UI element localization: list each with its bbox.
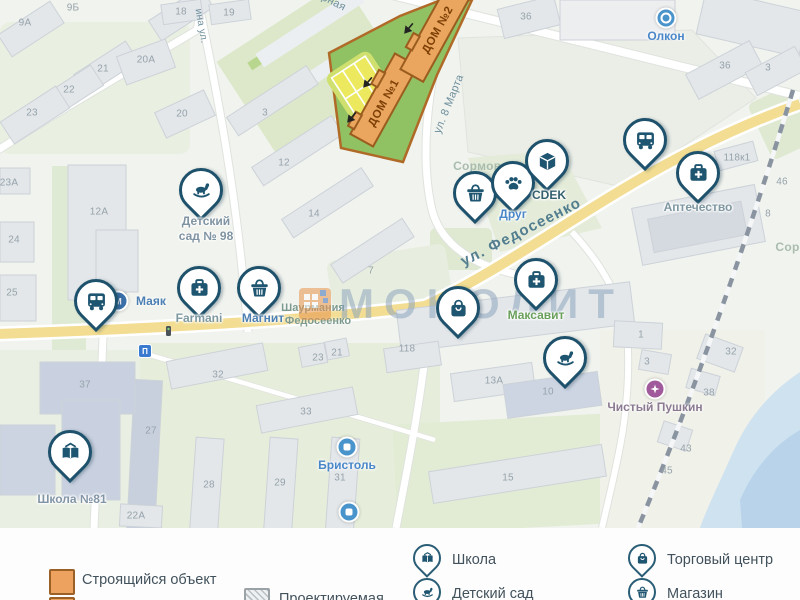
poi-label: CDEK [532, 188, 566, 203]
building-number: 37 [79, 380, 91, 391]
building-number: 8 [765, 209, 771, 220]
rocking-horse-icon [415, 580, 439, 600]
sq-icon [346, 509, 353, 516]
poi-dot-label: Чистый Пушкин [607, 400, 702, 414]
building-number: 118 [399, 344, 416, 355]
poi-dot[interactable] [339, 502, 360, 523]
building-number: 43 [680, 444, 692, 455]
bag-icon [630, 546, 654, 570]
medkit-icon [517, 261, 555, 299]
building-number: 36 [719, 61, 731, 72]
building-number: 20 [176, 109, 188, 120]
building-number: 10 [542, 387, 554, 398]
map-screenshot: ДОМ №1 ДОМ №2 9Б9А21222320А18192023А12А2… [0, 0, 800, 600]
poi-label: Магнит [242, 311, 284, 326]
building-number: 21 [97, 64, 109, 75]
bag-icon [439, 289, 477, 327]
box-icon [528, 142, 566, 180]
building-number: 9Б [67, 3, 80, 14]
bus-icon [626, 121, 664, 159]
building-number: 21 [331, 348, 343, 359]
ring-icon [661, 13, 672, 24]
building-number: 14 [308, 209, 320, 220]
legend-label-rocking-horse: Детский сад [452, 586, 533, 600]
book-icon [51, 433, 89, 471]
rocking-horse-icon [546, 339, 584, 377]
building-number: 24 [8, 235, 20, 246]
building-number: 12А [90, 207, 108, 218]
basket-icon [240, 269, 278, 307]
poi-label: Максавит [508, 308, 565, 323]
poi-dot[interactable] [337, 437, 358, 458]
medkit-icon [679, 154, 717, 192]
building-number: 45 [661, 466, 673, 477]
building-number: 28 [203, 480, 215, 491]
building-number: 23А [0, 178, 18, 189]
building-number: 118к1 [724, 153, 751, 164]
building-number: 38 [703, 388, 715, 399]
book-icon [415, 546, 439, 570]
legend-label-book: Школа [452, 552, 496, 568]
poi-dot-label: Бристоль [318, 458, 376, 472]
building-number: 22А [127, 511, 145, 522]
building-number: 27 [145, 426, 157, 437]
rocking-horse-icon [182, 171, 220, 209]
building-number: 1 [638, 330, 644, 341]
building-number: 25 [6, 288, 18, 299]
building-number: 3 [644, 357, 650, 368]
building-number: 18 [175, 7, 187, 18]
building-number: 3 [262, 108, 268, 119]
building-number: 3 [765, 63, 771, 74]
legend-label-bag: Торговый центр [667, 552, 773, 568]
flower-icon [651, 385, 660, 394]
poi-small-label: Шаурмания [281, 302, 345, 314]
poi-label: Школа №81 [37, 492, 106, 507]
medkit-icon [180, 269, 218, 307]
map-canvas: ДОМ №1 ДОМ №2 9Б9А21222320А18192023А12А2… [0, 0, 800, 528]
building-number: 22 [63, 85, 75, 96]
poi-label: Детский сад № 98 [179, 214, 234, 244]
poi-label: Аптечество [664, 200, 733, 215]
legend-swatch-projected [244, 588, 270, 600]
poi-label: Друг [499, 207, 526, 222]
building-number: 32 [725, 347, 737, 358]
basket-icon [456, 174, 494, 212]
building-number: 13А [485, 376, 503, 387]
building-number: 29 [274, 478, 286, 489]
sq-icon [344, 444, 351, 451]
poi-dot-label: Олкон [647, 29, 684, 43]
poi-dot-label: Маяк [136, 294, 166, 308]
building-number: 33 [300, 407, 312, 418]
building-number: 46 [776, 177, 788, 188]
poi-label: Farmani [176, 311, 223, 326]
building-number: 31 [334, 473, 346, 484]
building-number: 9А [19, 18, 32, 29]
building-number: 7 [368, 266, 374, 277]
building-number: 23 [312, 353, 324, 364]
building-number: 20А [137, 55, 155, 66]
poi-dot[interactable] [656, 8, 677, 29]
legend-swatch-construction [49, 569, 75, 595]
poi-dot[interactable] [645, 379, 666, 400]
basket-icon [630, 580, 654, 600]
building-number: 36 [520, 12, 532, 23]
legend-label-projected: Проектируемая [279, 591, 384, 600]
street-label: Сорм [775, 240, 800, 254]
poi-small-label: Федосеенко [285, 315, 351, 327]
building-number: 32 [212, 370, 224, 381]
legend-label-basket: Магазин [667, 586, 723, 600]
parking-sign: П [138, 344, 152, 358]
bus-icon [77, 282, 115, 320]
building-number: 15 [502, 473, 514, 484]
building-number: 12 [278, 158, 290, 169]
building-number: 23 [26, 108, 38, 119]
building-number: 19 [223, 8, 235, 19]
legend-label-construction: Строящийся объект [82, 572, 217, 588]
